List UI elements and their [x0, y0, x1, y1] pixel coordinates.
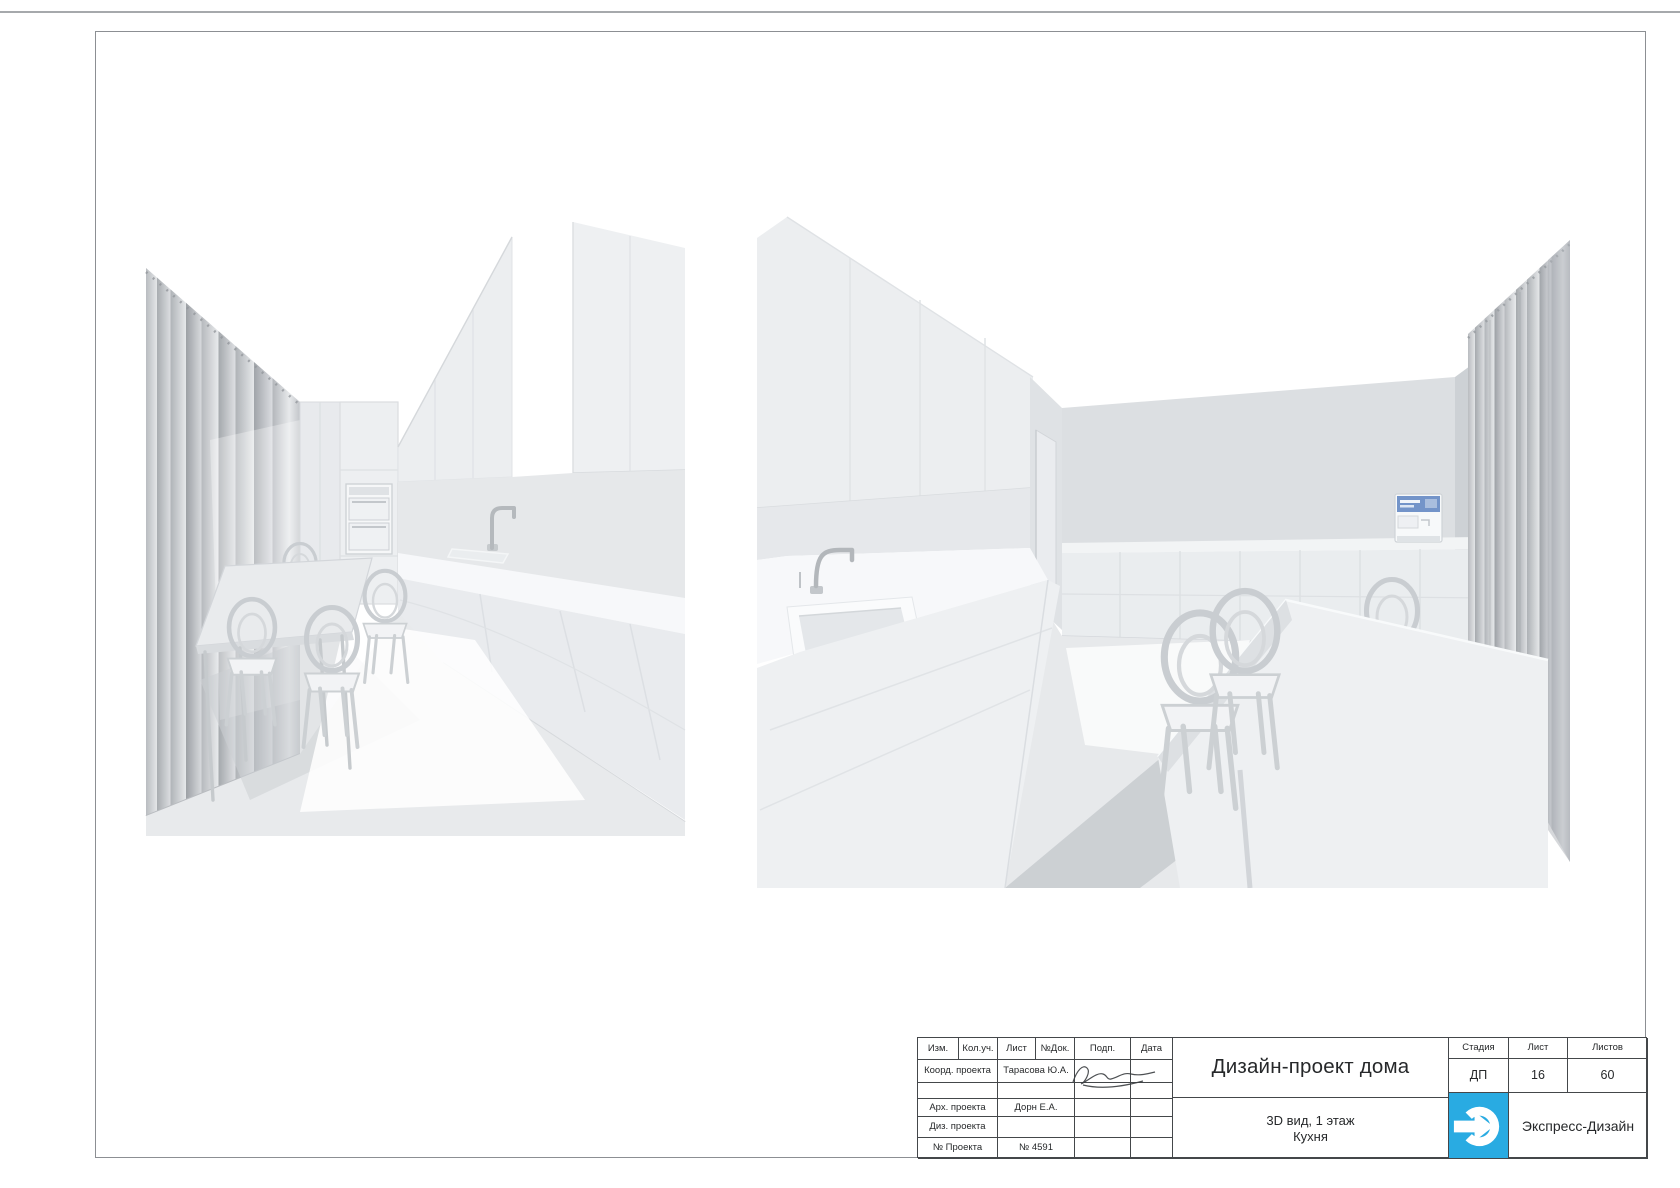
coffee-machine: [1395, 494, 1442, 542]
row-role: Коорд. проекта: [918, 1060, 998, 1083]
row-signature-cell: [1075, 1060, 1131, 1083]
row-date-cell: [1131, 1138, 1173, 1159]
render-kitchen-view-2: [757, 210, 1570, 888]
company-logo-cell: [1449, 1093, 1509, 1159]
row-signature-cell: [1075, 1083, 1131, 1099]
render-kitchen-view-1: [140, 216, 686, 836]
sheet-label: Лист: [1509, 1038, 1568, 1059]
stage-value: ДП: [1449, 1059, 1509, 1093]
th-ndok: №Док.: [1036, 1038, 1075, 1060]
upper-cabinets-left: [757, 217, 1033, 508]
row-signature-cell: [1075, 1138, 1131, 1159]
page-top-rule: [0, 11, 1680, 13]
row-name: № 4591: [998, 1138, 1075, 1159]
row-date-cell: [1131, 1099, 1173, 1117]
row-signature-cell: [1075, 1099, 1131, 1117]
row-name: [998, 1083, 1075, 1099]
row-name: [998, 1117, 1075, 1138]
express-design-logo-icon: [1449, 1093, 1508, 1158]
th-izm: Изм.: [918, 1038, 959, 1060]
sheet-title-line2: Кухня: [1293, 1130, 1328, 1143]
row-date-cell: [1131, 1083, 1173, 1099]
sheets-label: Листов: [1568, 1038, 1648, 1059]
row-role: № Проекта: [918, 1138, 998, 1159]
row-date-cell: [1131, 1117, 1173, 1138]
row-name: Дорн Е.А.: [998, 1099, 1075, 1117]
upper-cabinets-far: [398, 237, 512, 482]
row-role: Арх. проекта: [918, 1099, 998, 1117]
row-role: Диз. проекта: [918, 1117, 998, 1138]
row-role: [918, 1083, 998, 1099]
upper-cabinets-near: [573, 222, 685, 473]
sheet-title-line1: 3D вид, 1 этаж: [1266, 1114, 1354, 1127]
company-name: Экспресс-Дизайн: [1509, 1093, 1648, 1159]
title-block: Изм. Кол.уч. Лист №Док. Подп. Дата Коорд…: [917, 1037, 1647, 1158]
th-koluch: Кол.уч.: [959, 1038, 998, 1060]
row-signature-cell: [1075, 1117, 1131, 1138]
th-data: Дата: [1131, 1038, 1173, 1060]
row-date-cell: [1131, 1060, 1173, 1083]
sheets-total: 60: [1568, 1059, 1648, 1093]
sheet-title: 3D вид, 1 этаж Кухня: [1173, 1098, 1449, 1159]
sheet-number: 16: [1509, 1059, 1568, 1093]
row-name: Тарасова Ю.А.: [998, 1060, 1075, 1083]
stage-label: Стадия: [1449, 1038, 1509, 1059]
project-title: Дизайн-проект дома: [1173, 1038, 1449, 1098]
th-list: Лист: [998, 1038, 1036, 1060]
th-podp: Подп.: [1075, 1038, 1131, 1060]
